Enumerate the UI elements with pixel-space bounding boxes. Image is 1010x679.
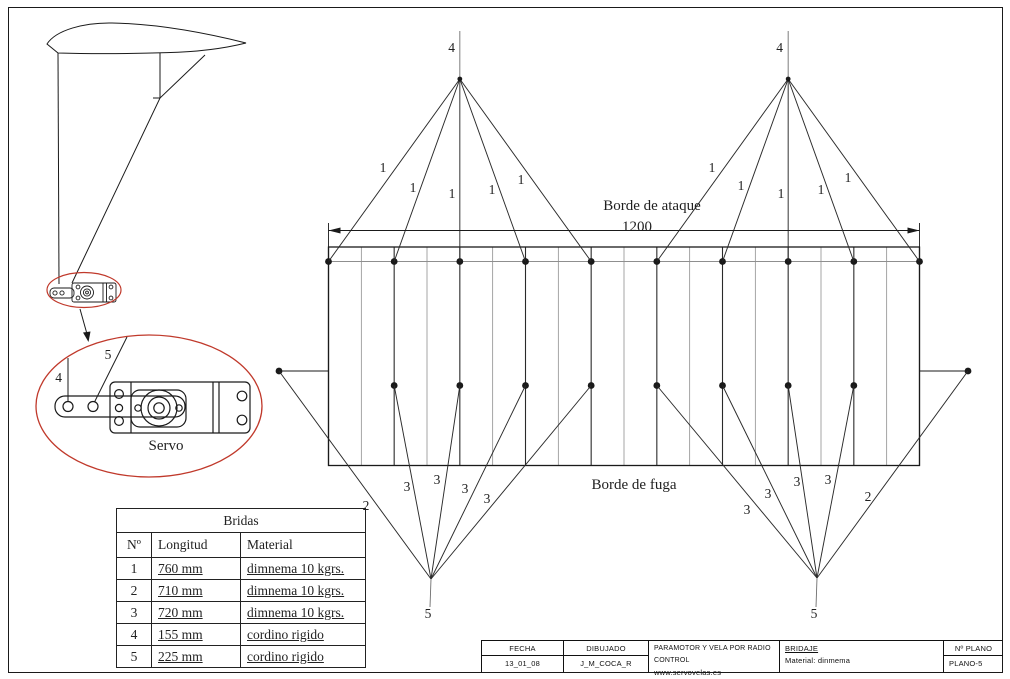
- apex-point: [786, 77, 791, 82]
- leading-edge-label: Borde de ataque: [603, 198, 701, 214]
- col-header-material: Material: [241, 533, 366, 558]
- project-cell: PARAMOTOR Y VELA POR RADIO CONTROL www.s…: [649, 641, 780, 672]
- cell-longitud: 155 mm: [152, 624, 241, 646]
- line-number-3-label: 3: [765, 486, 772, 501]
- dimension-arrow-icon: [908, 228, 920, 234]
- riser-line-bottom: [430, 579, 431, 607]
- line-number-1-label: 1: [738, 178, 745, 193]
- table-row: 3 720 mm dimnema 10 kgrs.: [117, 602, 366, 624]
- bridas-table: Bridas Nº Longitud Material 1 760 mm dim…: [116, 508, 366, 668]
- line-number-1-label: 1: [818, 182, 825, 197]
- apex-point: [457, 77, 462, 82]
- line-number-1-label: 1: [518, 172, 525, 187]
- plano-cell: Nº PLANO PLANO-5: [944, 641, 1003, 672]
- line-number-3-label: 3: [404, 479, 411, 494]
- servo-mini-sketch: [50, 283, 116, 302]
- line-number-1-label: 1: [709, 160, 716, 175]
- cell-numero: 3: [117, 602, 152, 624]
- piece-material: Material: dinmema: [785, 655, 943, 667]
- cell-numero: 4: [117, 624, 152, 646]
- bridle-line-upper: [723, 79, 789, 262]
- dibujado-label: DIBUJADO: [564, 641, 648, 656]
- line-number-3-label: 3: [825, 472, 832, 487]
- cell-numero: 5: [117, 646, 152, 668]
- span-dimension-label: 1200: [622, 219, 652, 235]
- line-number-1-label: 1: [778, 186, 785, 201]
- trailing-edge-label: Borde de fuga: [592, 477, 677, 493]
- table-title: Bridas: [117, 509, 366, 533]
- detail-arrow-icon: [80, 309, 91, 342]
- riser-number-4-label: 4: [55, 370, 62, 385]
- drawing-sheet: Servo Borde de ataque 1200 Borde de fuga…: [0, 0, 1010, 679]
- piece-cell: BRIDAJE Material: dinmema: [780, 641, 944, 672]
- cell-longitud: 225 mm: [152, 646, 241, 668]
- table-header-row: Nº Longitud Material: [117, 533, 366, 558]
- bridle-line-upper: [788, 79, 919, 262]
- plano-label: Nº PLANO: [944, 641, 1003, 656]
- cell-material: cordino rigido: [241, 646, 366, 668]
- col-header-longitud: Longitud: [152, 533, 241, 558]
- title-block: FECHA 13_01_08 DIBUJADO J_M_COCA_R PARAM…: [481, 640, 1003, 672]
- bridle-line-upper: [460, 79, 591, 262]
- bridle-line-upper: [394, 79, 460, 262]
- line-number-1-label: 1: [380, 160, 387, 175]
- servo-label: Servo: [149, 438, 184, 454]
- project-title: PARAMOTOR Y VELA POR RADIO CONTROL: [654, 643, 779, 667]
- riser-number-5-label: 5: [811, 606, 818, 621]
- cell-numero: 2: [117, 580, 152, 602]
- table-title-row: Bridas: [117, 509, 366, 533]
- dibujado-value: J_M_COCA_R: [564, 656, 648, 671]
- fecha-cell: FECHA 13_01_08: [482, 641, 564, 672]
- plano-value: PLANO-5: [944, 656, 1003, 671]
- cell-longitud: 760 mm: [152, 558, 241, 580]
- fecha-value: 13_01_08: [482, 656, 563, 671]
- cell-material: dimnema 10 kgrs.: [241, 580, 366, 602]
- dimension-arrow-icon: [329, 228, 341, 234]
- table-row: 1 760 mm dimnema 10 kgrs.: [117, 558, 366, 580]
- bridle-line-lower: [817, 386, 854, 579]
- line-number-2-label: 2: [865, 489, 872, 504]
- cell-longitud: 720 mm: [152, 602, 241, 624]
- airfoil-profile-sketch: [47, 23, 246, 284]
- project-website: www.servovelas.es: [654, 667, 779, 679]
- line-number-3-label: 3: [462, 481, 469, 496]
- leading-edge-anchor-dot: [653, 258, 660, 265]
- cell-material: cordino rigido: [241, 624, 366, 646]
- line-number-1-label: 1: [410, 180, 417, 195]
- cell-material: dimnema 10 kgrs.: [241, 558, 366, 580]
- table-row: 4 155 mm cordino rigido: [117, 624, 366, 646]
- bridle-line-upper: [329, 79, 460, 262]
- riser-line-bottom: [816, 578, 817, 607]
- line-number-3-label: 3: [794, 474, 801, 489]
- table-row: 2 710 mm dimnema 10 kgrs.: [117, 580, 366, 602]
- riser-number-5-label: 5: [105, 347, 112, 362]
- piece-name: BRIDAJE: [785, 643, 943, 655]
- line-number-1-label: 1: [489, 182, 496, 197]
- cell-longitud: 710 mm: [152, 580, 241, 602]
- line-number-1-label: 1: [845, 170, 852, 185]
- bridle-line-upper: [460, 79, 526, 262]
- riser-number-5-label: 5: [425, 606, 432, 621]
- cell-material: dimnema 10 kgrs.: [241, 602, 366, 624]
- bridle-line-lower: [394, 386, 431, 580]
- line-number-1-label: 1: [449, 186, 456, 201]
- cell-numero: 1: [117, 558, 152, 580]
- fecha-label: FECHA: [482, 641, 563, 656]
- dibujado-cell: DIBUJADO J_M_COCA_R: [564, 641, 649, 672]
- riser-number-4-label: 4: [448, 40, 455, 55]
- table-row: 5 225 mm cordino rigido: [117, 646, 366, 668]
- callout-ellipse-large: [36, 335, 262, 477]
- bridle-line-upper: [657, 79, 788, 262]
- col-header-numero: Nº: [117, 533, 152, 558]
- line-number-3-label: 3: [484, 491, 491, 506]
- bridle-line-tip: [817, 371, 968, 578]
- line-number-3-label: 3: [744, 502, 751, 517]
- line-number-3-label: 3: [434, 472, 441, 487]
- riser-number-4-label: 4: [776, 40, 783, 55]
